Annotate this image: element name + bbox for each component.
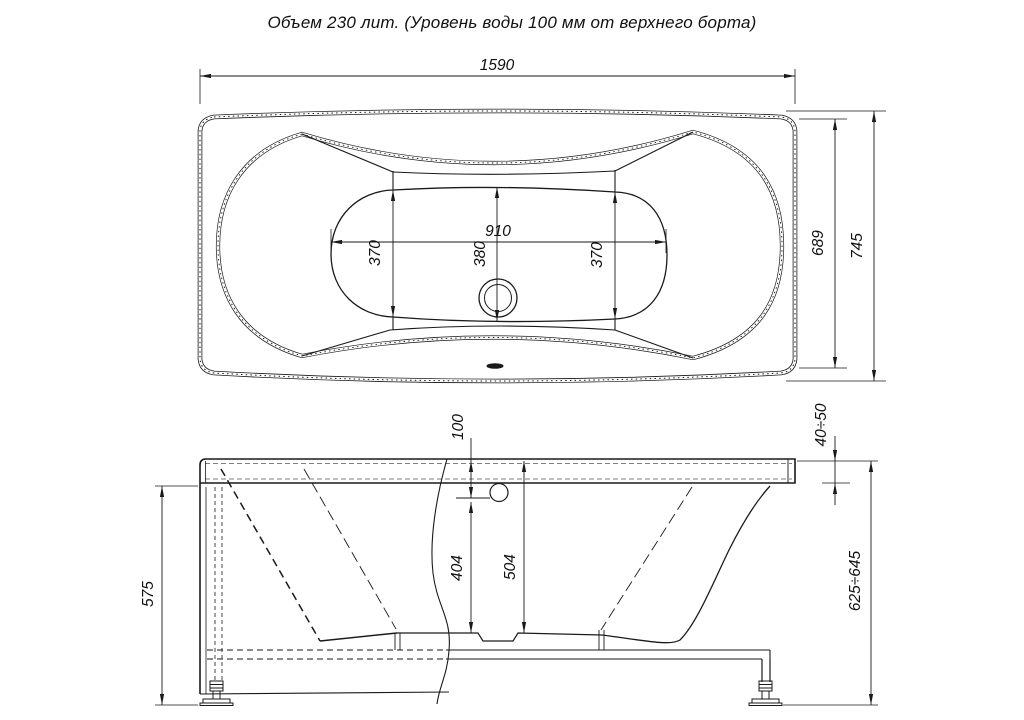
dim-text-689: 689 <box>810 230 827 256</box>
dim-water-level: 100 <box>450 414 473 498</box>
dim-overall-length: 1590 <box>200 57 795 104</box>
frame-rails <box>207 650 770 659</box>
top-view-dimensions: 1590 910 370 380 370 <box>200 57 886 381</box>
dim-text-575: 575 <box>140 581 157 607</box>
dim-rim-height: 40÷50 <box>797 403 878 505</box>
dim-text-910: 910 <box>485 223 511 240</box>
dim-text-40-50: 40÷50 <box>813 403 830 446</box>
dim-text-504: 504 <box>502 554 519 580</box>
overflow-mark <box>487 363 504 369</box>
dim-text-1590: 1590 <box>480 57 515 74</box>
tub-opening-edge <box>218 132 782 358</box>
side-view <box>200 459 795 706</box>
dim-height-without-feet: 575 <box>140 486 198 705</box>
hidden-left-leg <box>215 487 222 680</box>
dim-text-380: 380 <box>472 241 489 267</box>
overflow-hole <box>490 484 508 502</box>
dim-overall-width: 745 <box>786 111 886 381</box>
dim-end-width: 689 <box>799 119 847 368</box>
dim-water-to-bottom: 404 <box>449 502 473 633</box>
dim-bottom-width-left: 370 <box>367 190 395 317</box>
right-adjustable-foot <box>749 681 782 706</box>
dim-text-370-right: 370 <box>589 242 606 268</box>
side-rim-band <box>200 459 795 483</box>
tub-outer-rim-edge <box>200 111 795 381</box>
dim-text-625-645: 625÷645 <box>847 551 864 612</box>
dim-overall-height: 625÷645 <box>783 461 878 705</box>
dim-text-745: 745 <box>849 233 866 259</box>
right-frame-leg <box>762 659 770 682</box>
dim-text-370-left: 370 <box>367 240 384 266</box>
front-apron-panel <box>200 483 449 694</box>
dim-bottom-width-center: 380 <box>472 187 499 321</box>
dim-text-100: 100 <box>450 414 467 440</box>
top-view <box>200 111 795 381</box>
dim-bottom-width-right: 370 <box>589 192 617 319</box>
bathtub-technical-drawing: 1590 910 370 380 370 <box>0 0 1024 720</box>
dim-text-404: 404 <box>449 555 466 581</box>
tub-wall-fold-lines <box>302 132 693 358</box>
hidden-wall-slopes <box>221 469 397 641</box>
side-view-dimensions: 575 100 404 504 40÷50 <box>140 403 878 705</box>
break-line <box>432 459 449 704</box>
